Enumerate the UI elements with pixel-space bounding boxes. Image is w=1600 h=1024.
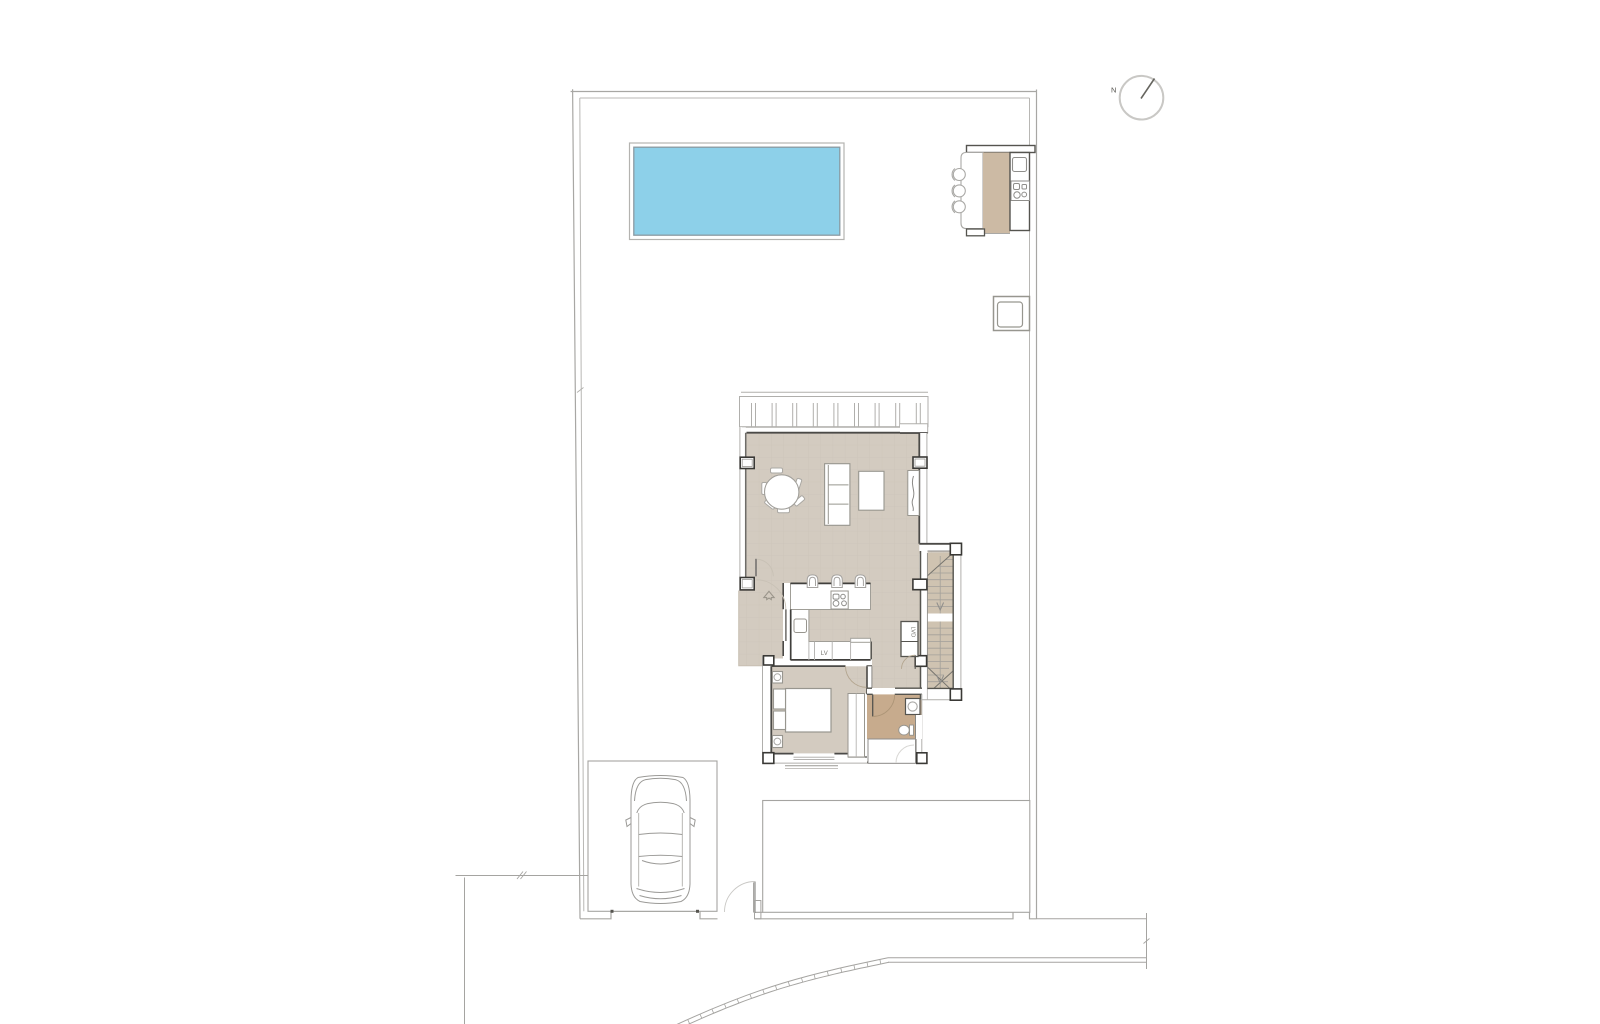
svg-text:LVD: LVD <box>910 627 916 638</box>
svg-text:LV: LV <box>821 651 828 657</box>
svg-text:N: N <box>1111 86 1116 95</box>
